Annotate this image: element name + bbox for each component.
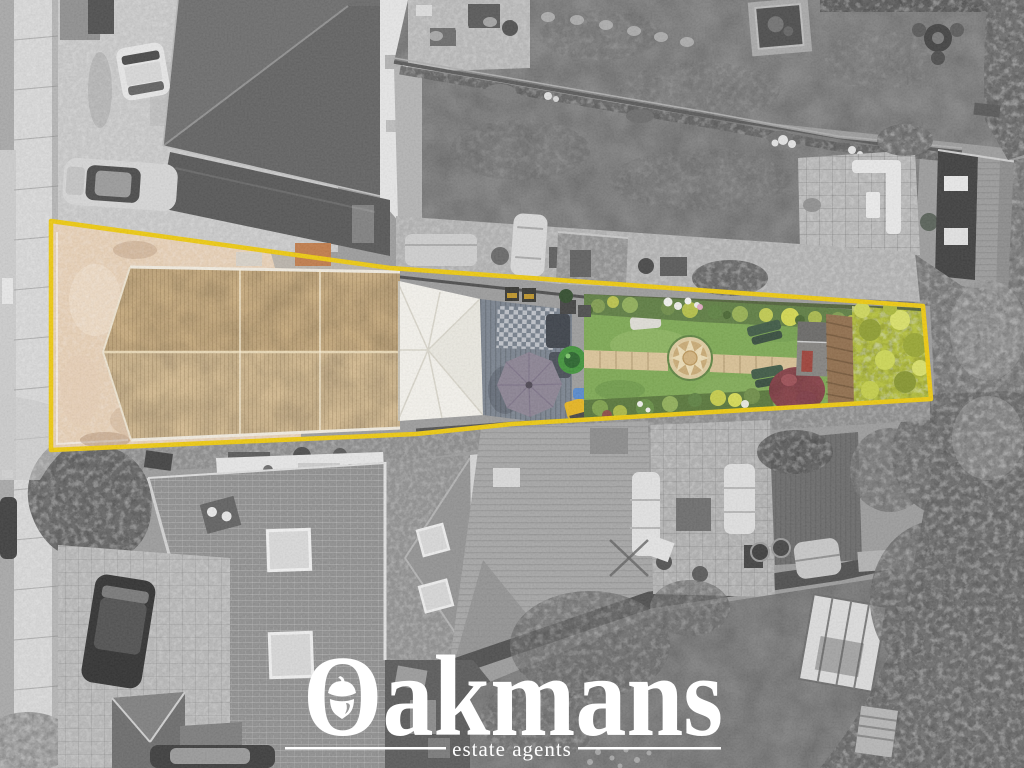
svg-text:estate agents: estate agents <box>452 737 572 761</box>
